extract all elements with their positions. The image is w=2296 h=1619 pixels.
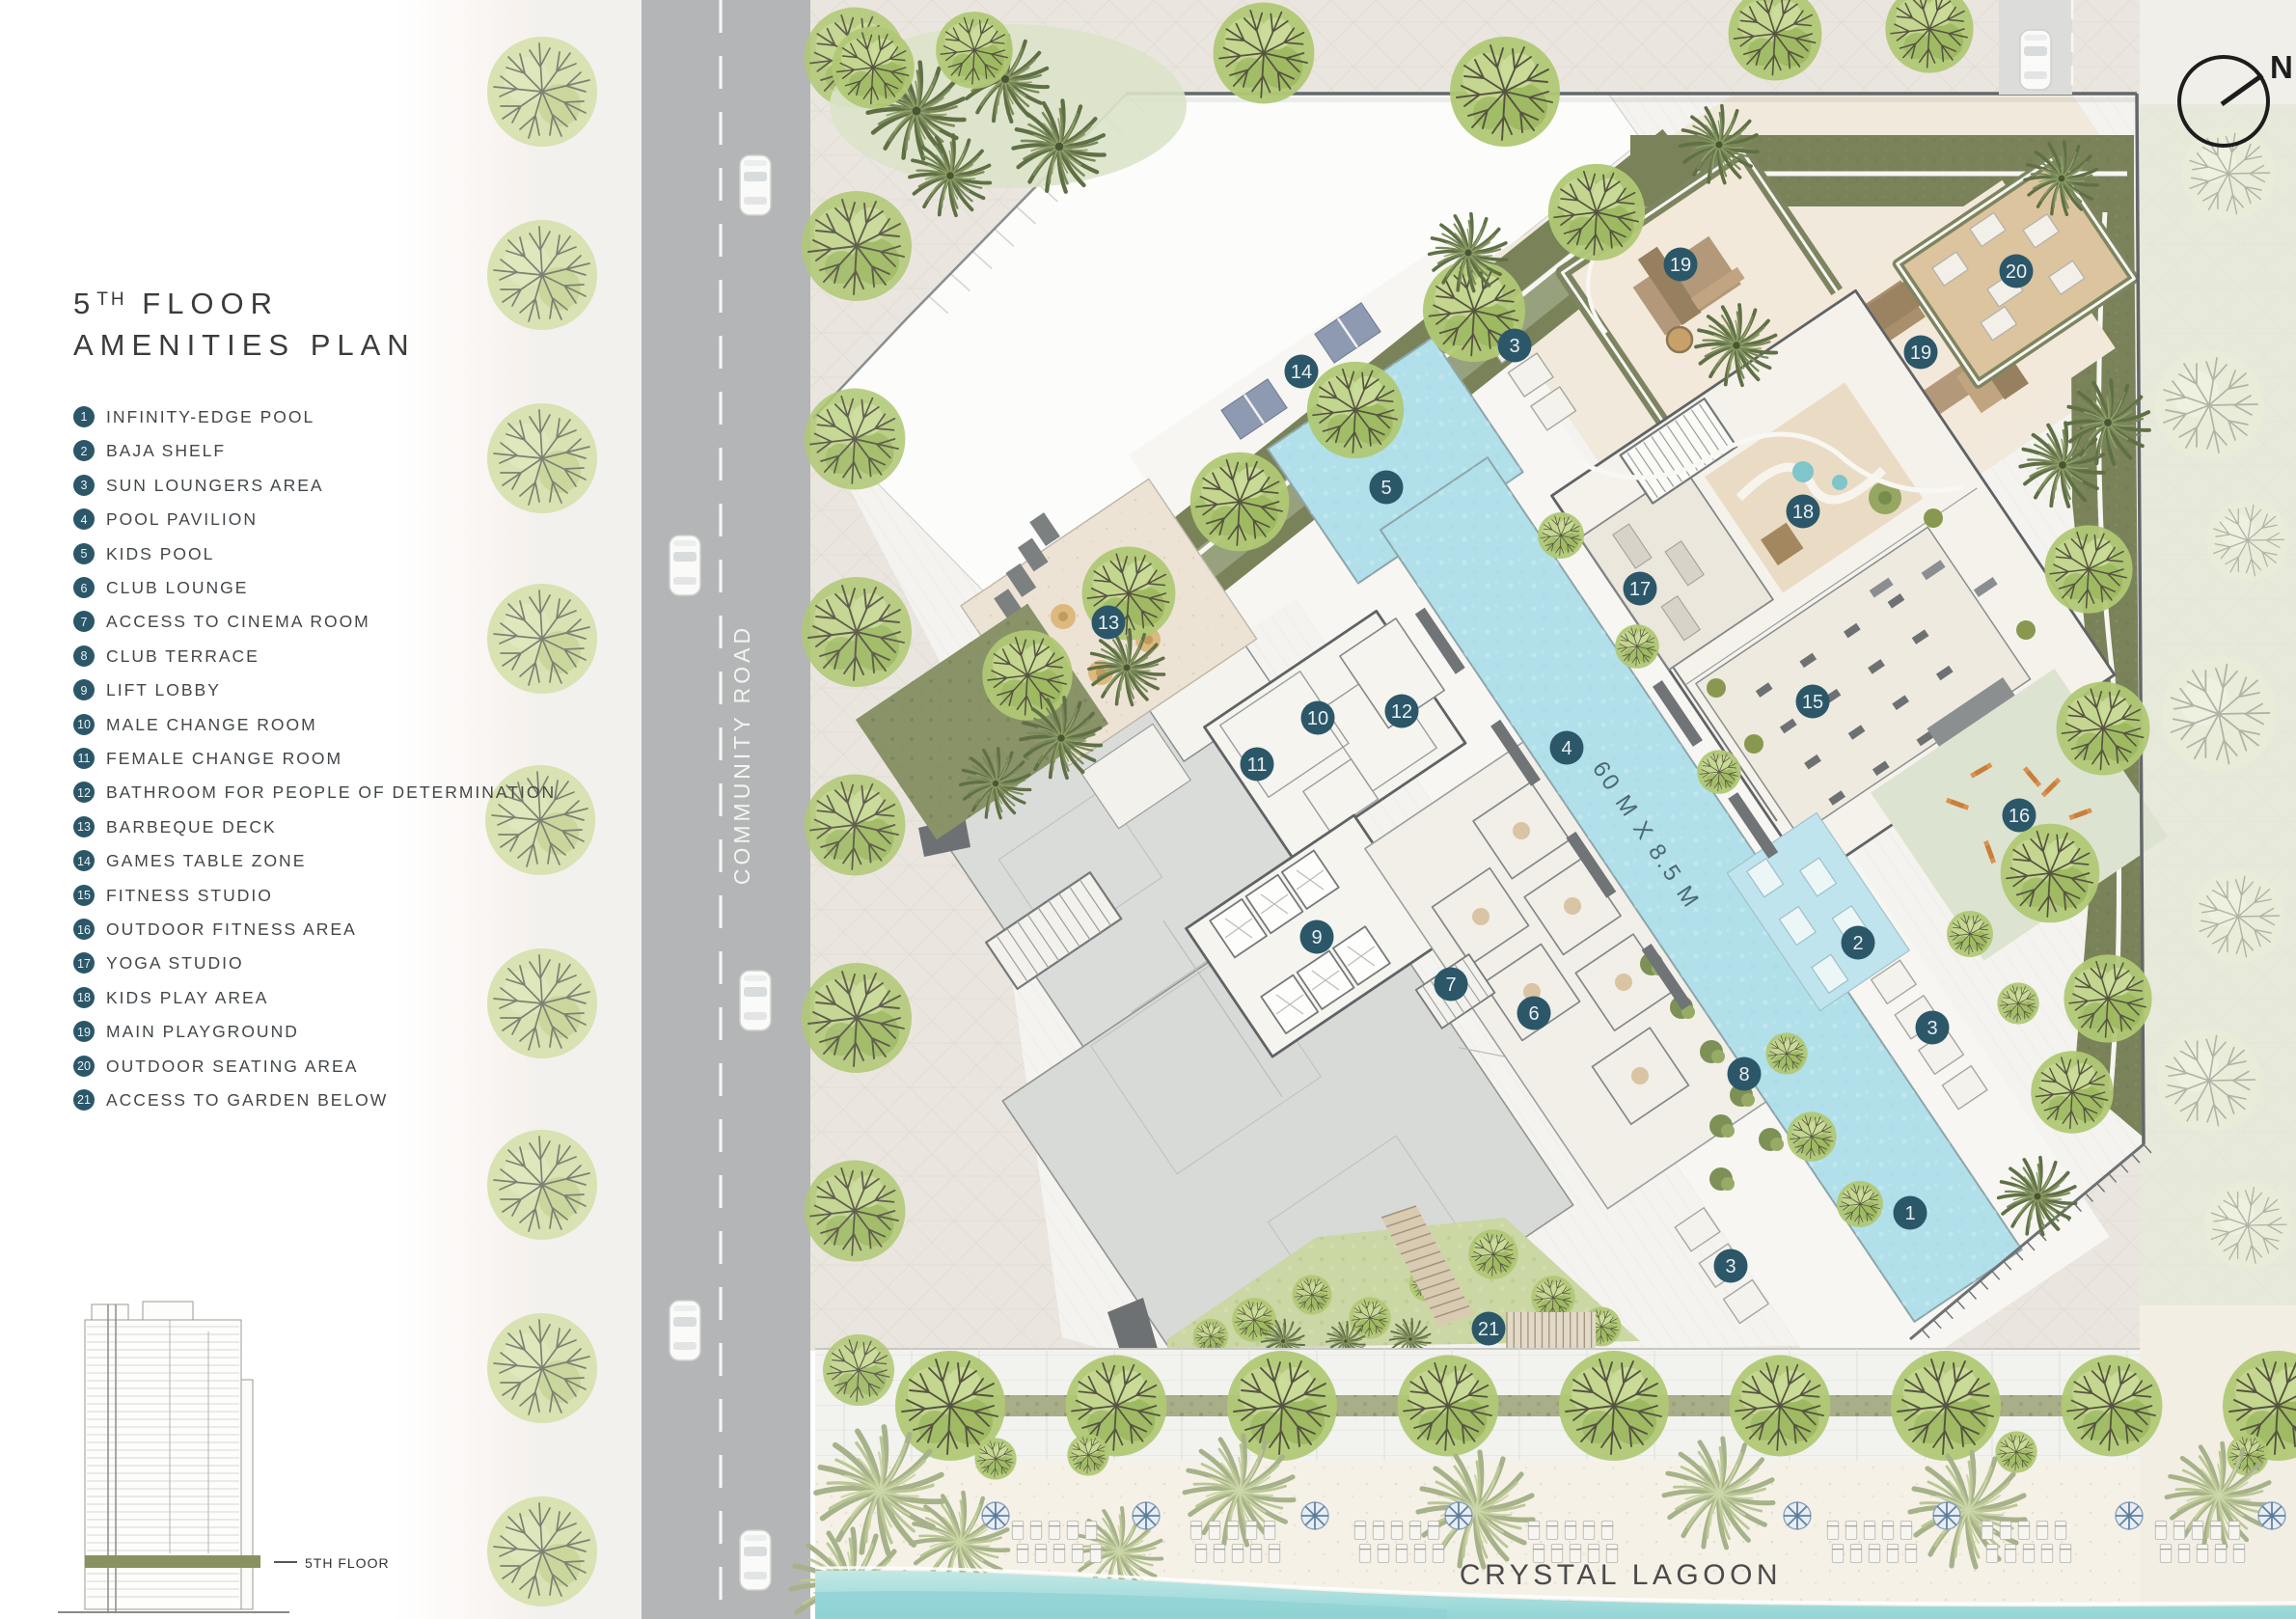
svg-text:13: 13 [77, 820, 91, 834]
svg-text:MALE CHANGE ROOM: MALE CHANGE ROOM [106, 715, 317, 734]
svg-text:GAMES TABLE ZONE: GAMES TABLE ZONE [106, 851, 306, 870]
svg-text:SUN LOUNGERS AREA: SUN LOUNGERS AREA [106, 476, 324, 495]
svg-text:AMENITIES PLAN: AMENITIES PLAN [73, 328, 416, 362]
svg-text:2: 2 [1852, 933, 1863, 954]
svg-text:15: 15 [1802, 692, 1823, 713]
svg-text:12: 12 [1391, 701, 1412, 723]
svg-text:18: 18 [77, 991, 91, 1004]
svg-text:6: 6 [81, 582, 88, 595]
svg-text:18: 18 [1792, 502, 1814, 523]
svg-text:8: 8 [81, 649, 88, 663]
svg-text:15: 15 [77, 889, 91, 902]
svg-text:2: 2 [81, 445, 88, 458]
svg-text:19: 19 [1910, 343, 1931, 364]
svg-text:16: 16 [77, 923, 91, 937]
svg-text:21: 21 [77, 1093, 91, 1107]
svg-text:N: N [2270, 49, 2293, 85]
svg-text:19: 19 [1670, 255, 1691, 276]
svg-text:19: 19 [77, 1026, 91, 1039]
svg-text:17: 17 [77, 957, 91, 971]
svg-text:7: 7 [1445, 974, 1456, 996]
svg-text:7: 7 [81, 616, 88, 629]
svg-text:17: 17 [1629, 579, 1651, 600]
svg-text:20: 20 [77, 1059, 91, 1073]
svg-text:12: 12 [77, 786, 91, 800]
svg-text:5TH FLOOR: 5TH FLOOR [305, 1555, 390, 1571]
svg-text:3: 3 [1509, 336, 1519, 357]
svg-text:21: 21 [1478, 1319, 1499, 1340]
svg-text:ACCESS TO GARDEN BELOW: ACCESS TO GARDEN BELOW [106, 1090, 388, 1110]
svg-text:KIDS POOL: KIDS POOL [106, 544, 214, 563]
svg-text:14: 14 [1291, 362, 1312, 383]
svg-text:BAJA SHELF: BAJA SHELF [106, 441, 226, 460]
svg-text:20: 20 [2006, 261, 2027, 283]
svg-text:3: 3 [81, 479, 88, 492]
svg-text:POOL PAVILION: POOL PAVILION [106, 509, 258, 529]
svg-text:YOGA STUDIO: YOGA STUDIO [106, 953, 244, 973]
svg-text:4: 4 [81, 513, 88, 527]
svg-text:LIFT LOBBY: LIFT LOBBY [106, 680, 221, 700]
svg-text:6: 6 [1528, 1003, 1539, 1025]
svg-text:3: 3 [1927, 1018, 1937, 1039]
svg-text:OUTDOOR SEATING AREA: OUTDOOR SEATING AREA [106, 1056, 358, 1076]
svg-text:COMMUNITY ROAD: COMMUNITY ROAD [729, 624, 754, 885]
svg-text:10: 10 [1307, 708, 1328, 729]
svg-text:3: 3 [1725, 1256, 1736, 1277]
svg-text:5: 5 [81, 547, 88, 561]
svg-text:1: 1 [1904, 1203, 1915, 1224]
svg-text:11: 11 [78, 752, 91, 765]
svg-text:KIDS PLAY AREA: KIDS PLAY AREA [106, 988, 268, 1007]
svg-text:11: 11 [1247, 755, 1268, 776]
svg-text:OUTDOOR FITNESS AREA: OUTDOOR FITNESS AREA [106, 919, 357, 939]
svg-text:8: 8 [1738, 1064, 1749, 1085]
svg-text:FEMALE CHANGE ROOM: FEMALE CHANGE ROOM [106, 749, 342, 768]
svg-text:9: 9 [81, 684, 88, 698]
svg-text:CRYSTAL LAGOON: CRYSTAL LAGOON [1460, 1559, 1782, 1591]
svg-text:BATHROOM FOR PEOPLE OF DETERMI: BATHROOM FOR PEOPLE OF DETERMINATION [106, 782, 556, 802]
svg-text:10: 10 [77, 718, 91, 731]
svg-text:13: 13 [1098, 613, 1119, 634]
svg-text:9: 9 [1311, 927, 1322, 948]
svg-text:BARBEQUE DECK: BARBEQUE DECK [106, 817, 277, 837]
svg-text:FITNESS STUDIO: FITNESS STUDIO [106, 886, 273, 905]
svg-text:CLUB TERRACE: CLUB TERRACE [106, 646, 260, 666]
svg-text:CLUB LOUNGE: CLUB LOUNGE [106, 578, 248, 597]
svg-text:INFINITY-EDGE POOL: INFINITY-EDGE POOL [106, 407, 314, 426]
svg-text:5: 5 [1380, 478, 1391, 499]
svg-text:14: 14 [77, 855, 91, 868]
svg-text:4: 4 [1561, 738, 1572, 759]
svg-text:1: 1 [81, 410, 88, 424]
svg-text:ACCESS TO CINEMA ROOM: ACCESS TO CINEMA ROOM [106, 612, 370, 631]
svg-text:MAIN PLAYGROUND: MAIN PLAYGROUND [106, 1022, 299, 1041]
svg-text:16: 16 [2009, 806, 2030, 827]
